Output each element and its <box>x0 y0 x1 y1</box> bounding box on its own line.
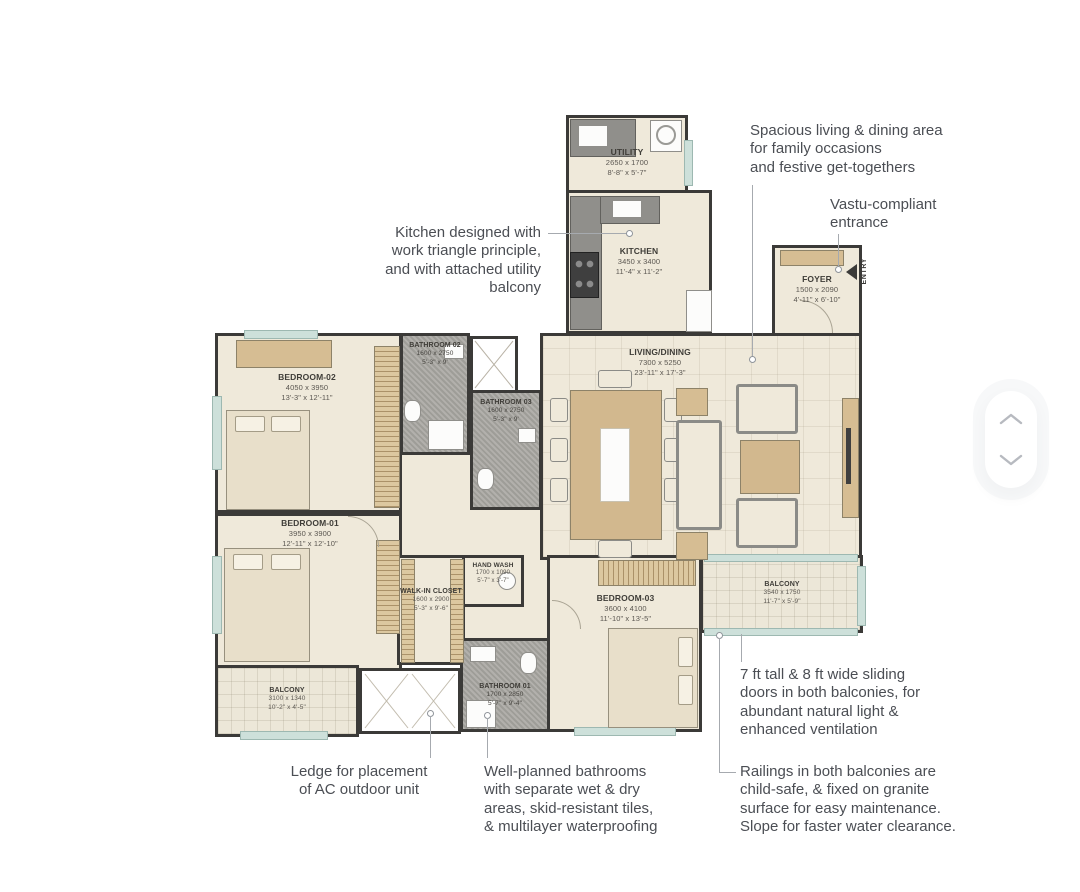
annotation-railings: Railings in both balconies are child-saf… <box>740 763 990 836</box>
leader-line-kitchen <box>548 233 627 234</box>
room-label-bathroom-02: BATHROOM 02 1600 x 2750 5'-3" x 9' <box>400 341 470 367</box>
shoe-cabinet <box>780 250 844 266</box>
balcony-railing-glass <box>704 628 858 636</box>
window <box>240 731 328 740</box>
room-label-bathroom-03: BATHROOM 03 1600 x 2750 5'-3" x 9' <box>471 398 541 424</box>
room-label-walkin-closet: WALK-IN CLOSET 1600 x 2900 5'-3" x 9'-6" <box>399 587 463 613</box>
bed <box>226 410 310 510</box>
service-shaft <box>470 336 518 393</box>
shaft-x-icon <box>473 339 515 390</box>
wardrobe <box>598 560 696 586</box>
toilet <box>477 468 494 490</box>
room-label-utility: UTILITY 2650 x 1700 8'-8" x 5'-7" <box>566 147 688 178</box>
annotation-bathrooms: Well-planned bathrooms with separate wet… <box>484 763 679 836</box>
leader-line-ledge <box>430 716 431 758</box>
wardrobe <box>374 346 400 508</box>
leader-line-living <box>752 185 753 357</box>
sofa-three-seater <box>676 420 722 530</box>
washbasin <box>470 646 496 662</box>
washer-drum-icon <box>656 125 676 145</box>
entry-arrow-icon <box>846 264 857 280</box>
annotation-kitchen: Kitchen designed with work triangle prin… <box>355 224 541 297</box>
annotation-living: Spacious living & dining area for family… <box>750 122 980 177</box>
coffee-table <box>740 440 800 494</box>
carousel-down-button[interactable] <box>985 445 1037 475</box>
dining-chair <box>550 438 568 462</box>
room-label-bedroom-01: BEDROOM-01 3950 x 3900 12'-11" x 12'-10" <box>240 518 380 549</box>
leader-line-bathrooms <box>487 718 488 758</box>
dining-chair <box>598 540 632 558</box>
toilet <box>520 652 537 674</box>
room-label-balcony-left: BALCONY 3100 x 1340 10'-2" x 4'-5" <box>228 686 346 712</box>
window <box>212 556 222 634</box>
leader-line-railings <box>719 638 720 772</box>
window <box>212 396 222 470</box>
pillow <box>678 675 693 705</box>
chevron-up-icon <box>998 412 1024 426</box>
room-label-kitchen: KITCHEN 3450 x 3400 11'-4" x 11'-2" <box>566 246 712 277</box>
ac-ledge <box>359 668 461 734</box>
window <box>574 727 676 736</box>
table-runner <box>600 428 630 502</box>
chevron-down-icon <box>998 453 1024 467</box>
armchair <box>736 384 798 434</box>
room-label-bedroom-02: BEDROOM-02 4050 x 3950 13'-3" x 12'-11" <box>228 372 386 403</box>
leader-dot <box>749 356 756 363</box>
room-label-living-dining: LIVING/DINING 7300 x 5250 23'-11" x 17'-… <box>565 347 755 378</box>
dining-chair <box>550 478 568 502</box>
pillow <box>271 554 301 570</box>
tv-icon <box>846 428 851 484</box>
washbasin <box>518 428 536 443</box>
leader-line-sliding-doors <box>741 634 742 662</box>
side-table <box>676 532 708 560</box>
pillow <box>233 554 263 570</box>
room-label-hand-wash: HAND WASH 1700 x 1090 5'-7" x 3'-7" <box>462 562 524 586</box>
carousel-scroll-control <box>985 391 1037 488</box>
dining-chair <box>550 398 568 422</box>
side-table <box>676 388 708 416</box>
annotation-entrance: Vastu-compliant entrance <box>830 196 960 233</box>
sliding-door-glass <box>704 554 858 562</box>
bed <box>608 628 698 728</box>
leader-dot <box>626 230 633 237</box>
leader-dot <box>835 266 842 273</box>
room-label-bathroom-01: BATHROOM 01 1700 x 2850 5'-7" x 9'-4" <box>460 682 550 708</box>
bed <box>224 548 310 662</box>
armchair <box>736 498 798 548</box>
annotation-ledge: Ledge for placement of AC outdoor unit <box>283 763 435 800</box>
entry-label: ENTRY <box>861 258 868 284</box>
dresser <box>376 540 400 634</box>
room-label-balcony-right: BALCONY 3540 x 1750 11'-7" x 5'-9" <box>712 580 852 606</box>
pillow <box>271 416 301 432</box>
annotation-sliding-doors: 7 ft tall & 8 ft wide sliding doors in b… <box>740 666 975 739</box>
window <box>857 566 866 626</box>
pillow <box>678 637 693 667</box>
pillow <box>235 416 265 432</box>
utility-sink <box>578 125 608 147</box>
ledge-x-icon <box>362 671 458 731</box>
toilet <box>404 400 421 422</box>
kitchen-sink <box>612 200 642 218</box>
leader-line-railings <box>719 772 736 773</box>
floorplan-page: UTILITY 2650 x 1700 8'-8" x 5'-7" KITCHE… <box>0 0 1080 892</box>
leader-line-entrance <box>838 234 839 266</box>
fridge <box>686 290 712 332</box>
window <box>244 330 318 339</box>
carousel-up-button[interactable] <box>985 404 1037 434</box>
room-label-bedroom-03: BEDROOM-03 3600 x 4100 11'-10" x 13'-5" <box>558 593 693 624</box>
bathtub <box>428 420 464 450</box>
dresser <box>236 340 332 368</box>
